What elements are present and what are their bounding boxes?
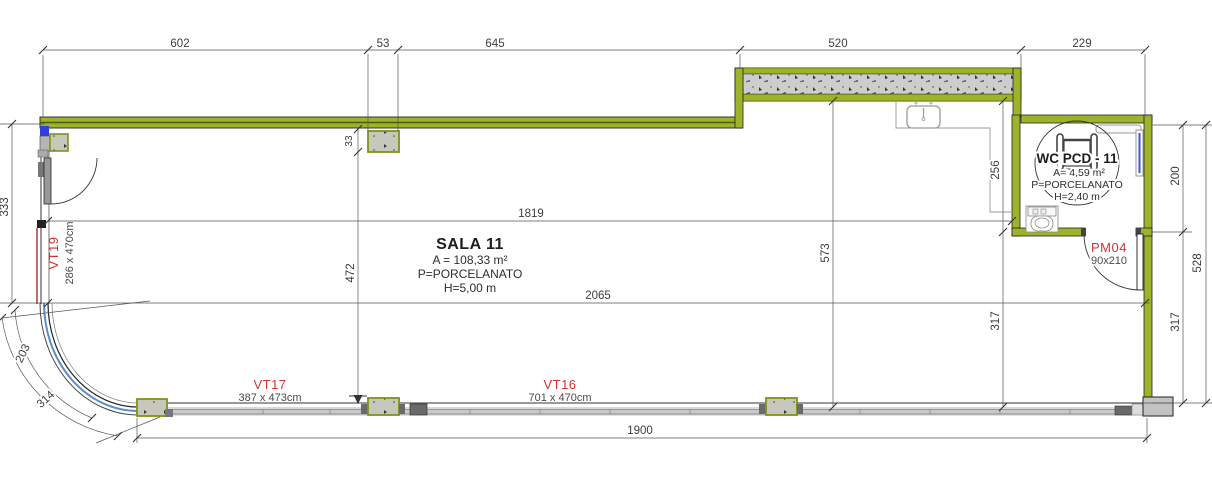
- mullion-block: [1132, 404, 1143, 415]
- pm04-code: PM04: [1091, 240, 1127, 255]
- wc-name: WC PCD - 11: [1036, 151, 1118, 166]
- corner-column: [1143, 397, 1173, 416]
- column: [368, 131, 399, 152]
- dim-229: 229: [1072, 38, 1091, 50]
- room-floor: P=PORCELANATO: [418, 267, 523, 281]
- vt19-code: VT19: [46, 236, 61, 269]
- room-name: SALA 11: [436, 236, 504, 253]
- dim-2065: 2065: [585, 290, 611, 302]
- room-height: H=5,00 m: [444, 281, 496, 295]
- dim-520: 520: [828, 38, 847, 50]
- sink-fixture: [907, 101, 940, 128]
- dim-256: 256: [990, 160, 1002, 179]
- dim-472: 472: [345, 263, 357, 282]
- blue-marker: [40, 126, 49, 137]
- dim-317-right: 317: [1170, 312, 1182, 331]
- floor-plan: 602 53 645 520 229 333 33 472 573 256 31…: [0, 0, 1212, 489]
- mullion-block: [759, 404, 766, 414]
- dim-602: 602: [170, 38, 189, 50]
- mullion-block: [361, 404, 368, 414]
- dim-317: 317: [990, 311, 1002, 330]
- vt17-code: VT17: [253, 377, 286, 392]
- door-label: PM04 90x210: [1091, 240, 1127, 267]
- column: [368, 398, 399, 415]
- column: [766, 398, 797, 415]
- dim-645: 645: [485, 38, 504, 50]
- pm04-size: 90x210: [1091, 255, 1127, 267]
- wc-counter: [1096, 125, 1141, 133]
- dim-573: 573: [820, 243, 832, 262]
- dimensions: [0, 46, 1212, 443]
- labels: 602 53 645 520 229 333 33 472 573 256 31…: [0, 38, 1204, 437]
- wc-area: A= 4,59 m²: [1053, 167, 1105, 179]
- concrete-hatch: [743, 74, 1014, 94]
- wc-floor: P=PORCELANATO: [1031, 179, 1123, 191]
- walls: [40, 68, 1152, 400]
- mullion-block: [399, 404, 405, 414]
- entry-door-left: [44, 158, 97, 204]
- mullion-block: [797, 404, 803, 414]
- dim-1819: 1819: [518, 208, 544, 220]
- dim-1900: 1900: [627, 425, 653, 437]
- wc-annotation: WC PCD - 11 A= 4,59 m² P=PORCELANATO H=2…: [1031, 151, 1123, 203]
- door-swing: [51, 158, 97, 204]
- column: [137, 399, 167, 416]
- dim-528: 528: [1192, 253, 1204, 272]
- door-leaf: [44, 158, 51, 204]
- top-wall: [40, 117, 742, 128]
- bumpout-wall: [735, 68, 1021, 128]
- dim-333: 333: [0, 197, 11, 216]
- storefront-glazing: [37, 150, 1145, 415]
- mullion-block: [410, 404, 427, 415]
- dim-200: 200: [1170, 166, 1182, 185]
- door-jamb: [1081, 228, 1086, 236]
- room-area: A = 108,33 m²: [432, 253, 507, 267]
- wc-height: H=2,40 m: [1054, 191, 1100, 203]
- doors: [44, 158, 1143, 290]
- column: [50, 134, 68, 151]
- vt16-size: 701 x 470cm: [529, 392, 592, 404]
- arc-dim-203: [15, 310, 92, 418]
- window-labels: VT19 286 x 470cm VT17 387 x 473cm VT16 7…: [46, 222, 591, 404]
- dim-ticks: [0, 46, 1210, 442]
- dim-53: 53: [377, 38, 390, 50]
- vt16-code: VT16: [543, 377, 576, 392]
- floor-plan-drawing: 602 53 645 520 229 333 33 472 573 256 31…: [0, 0, 1212, 489]
- dim-33: 33: [344, 135, 355, 147]
- dim-314: 314: [35, 388, 58, 410]
- vt19-size: 286 x 470cm: [64, 222, 76, 285]
- door-leaf: [1137, 234, 1143, 290]
- mullion-block: [1115, 406, 1132, 415]
- mullion-block: [165, 409, 173, 417]
- door-frame: [38, 150, 48, 157]
- room-annotation: SALA 11 A = 108,33 m² P=PORCELANATO H=5,…: [418, 236, 523, 295]
- toilet-fixture: [1026, 206, 1058, 232]
- vt17-size: 387 x 473cm: [239, 392, 302, 404]
